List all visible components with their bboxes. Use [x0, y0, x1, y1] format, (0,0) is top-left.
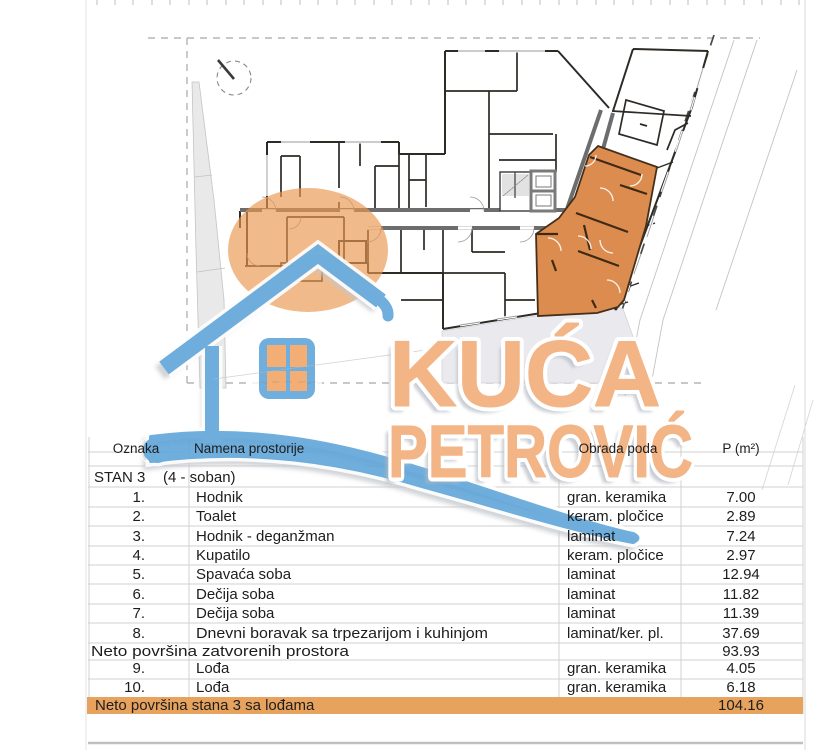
svg-text:10.: 10.	[124, 679, 145, 696]
svg-text:Namena prostorije: Namena prostorije	[194, 441, 304, 456]
svg-text:9.: 9.	[132, 660, 145, 677]
svg-text:Spavaća soba: Spavaća soba	[196, 566, 292, 583]
svg-text:93.93: 93.93	[722, 643, 760, 660]
svg-text:gran. keramika: gran. keramika	[567, 679, 667, 696]
svg-text:2.: 2.	[132, 508, 145, 525]
svg-text:keram. pločice: keram. pločice	[567, 547, 664, 564]
svg-text:Lođa: Lođa	[196, 679, 230, 696]
svg-text:Neto površina zatvorenih prost: Neto površina zatvorenih prostora	[91, 643, 350, 660]
svg-text:(4 - soban): (4 - soban)	[163, 469, 236, 486]
svg-text:Hodnik: Hodnik	[196, 489, 243, 506]
svg-text:Dečija soba: Dečija soba	[196, 605, 275, 622]
svg-text:8.: 8.	[132, 625, 145, 642]
svg-text:Hodnik - deganžman: Hodnik - deganžman	[196, 528, 334, 545]
svg-text:gran. keramika: gran. keramika	[567, 660, 667, 677]
svg-text:STAN 3: STAN 3	[94, 469, 145, 486]
svg-text:7.00: 7.00	[726, 489, 755, 506]
svg-text:Neto površina stana 3 sa lođam: Neto površina stana 3 sa lođama	[95, 697, 315, 714]
svg-text:laminat/ker. pl.: laminat/ker. pl.	[567, 625, 664, 642]
svg-text:5.: 5.	[132, 566, 145, 583]
svg-text:Kupatilo: Kupatilo	[196, 547, 250, 564]
svg-text:2.89: 2.89	[726, 508, 755, 525]
svg-text:37.69: 37.69	[722, 625, 760, 642]
svg-text:6.18: 6.18	[726, 679, 755, 696]
svg-text:104.16: 104.16	[718, 697, 764, 714]
svg-text:11.39: 11.39	[723, 605, 759, 622]
svg-text:laminat: laminat	[567, 528, 616, 545]
svg-text:3.: 3.	[132, 528, 145, 545]
svg-text:Dnevni boravak sa trpezarijom: Dnevni boravak sa trpezarijom i kuhinjom	[196, 625, 488, 642]
svg-text:4.: 4.	[132, 547, 145, 564]
svg-text:12.94: 12.94	[722, 566, 760, 583]
svg-text:6.: 6.	[132, 586, 145, 603]
svg-text:P (m²): P (m²)	[722, 441, 759, 456]
svg-text:laminat: laminat	[567, 566, 616, 583]
svg-text:7.: 7.	[132, 605, 145, 622]
svg-text:Lođa: Lođa	[196, 660, 230, 677]
svg-text:keram. pločice: keram. pločice	[567, 508, 664, 525]
svg-text:4.05: 4.05	[726, 660, 755, 677]
svg-text:laminat: laminat	[567, 586, 616, 603]
svg-text:1.: 1.	[132, 489, 145, 506]
svg-text:2.97: 2.97	[726, 547, 755, 564]
svg-text:Dečija soba: Dečija soba	[196, 586, 275, 603]
svg-text:Oznaka: Oznaka	[113, 441, 160, 456]
svg-text:Obrada poda: Obrada poda	[579, 441, 658, 456]
svg-text:7.24: 7.24	[726, 528, 755, 545]
svg-text:laminat: laminat	[567, 605, 616, 622]
svg-text:Toalet: Toalet	[196, 508, 237, 525]
svg-text:11.82: 11.82	[723, 586, 759, 603]
svg-text:gran. keramika: gran. keramika	[567, 489, 667, 506]
